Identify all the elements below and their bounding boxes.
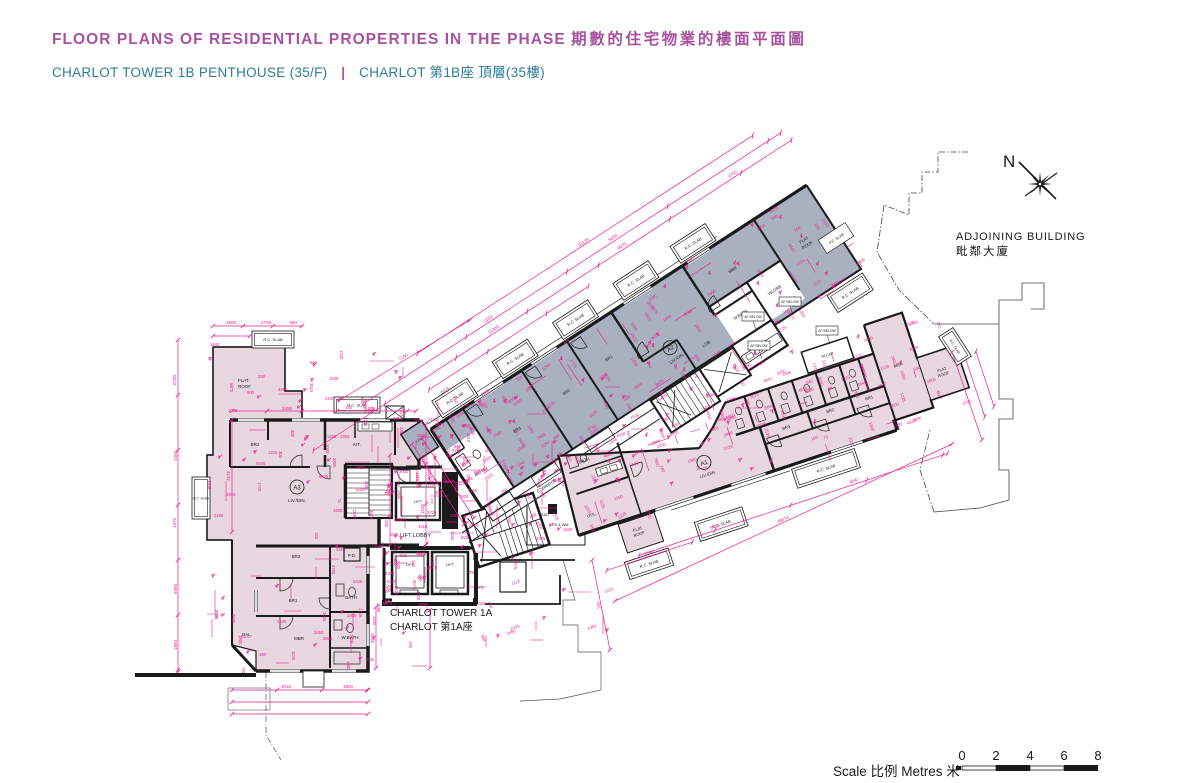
svg-text:1000: 1000: [416, 591, 421, 601]
svg-text:1500: 1500: [333, 508, 343, 513]
svg-text:1046: 1046: [537, 478, 542, 488]
svg-text:1800: 1800: [418, 602, 428, 607]
svg-text:1535: 1535: [629, 412, 640, 420]
svg-text:1640: 1640: [210, 342, 220, 347]
svg-text:160: 160: [507, 516, 512, 524]
svg-text:1350: 1350: [587, 623, 598, 631]
svg-text:4918: 4918: [418, 524, 428, 529]
svg-text:2000: 2000: [364, 481, 369, 491]
svg-text:BR2: BR2: [292, 554, 301, 559]
svg-text:250: 250: [258, 374, 266, 379]
svg-text:6: 6: [1060, 748, 1067, 763]
svg-text:1535: 1535: [277, 619, 287, 624]
svg-text:2180: 2180: [214, 610, 219, 620]
svg-text:2: 2: [992, 748, 999, 763]
svg-text:1640: 1640: [460, 535, 470, 540]
svg-text:3575: 3575: [412, 580, 417, 590]
svg-text:BATH: BATH: [345, 595, 357, 600]
svg-text:2725: 2725: [261, 320, 272, 325]
svg-text:R.C. SLAB: R.C. SLAB: [193, 497, 208, 501]
svg-text:5425: 5425: [319, 474, 329, 479]
svg-text:KIT.: KIT.: [353, 442, 361, 447]
svg-text:3615: 3615: [281, 684, 292, 689]
svg-text:1800: 1800: [352, 509, 357, 519]
svg-text:75: 75: [337, 498, 342, 503]
svg-text:1850: 1850: [173, 639, 178, 650]
svg-text:1535: 1535: [329, 376, 339, 381]
svg-text:P.D.: P.D.: [348, 553, 356, 558]
svg-text:1225: 1225: [268, 450, 278, 455]
svg-text:150: 150: [314, 532, 319, 540]
svg-text:1125: 1125: [511, 578, 522, 586]
svg-text:3450: 3450: [393, 416, 403, 421]
svg-text:6750: 6750: [172, 374, 177, 385]
svg-text:250: 250: [390, 532, 398, 537]
svg-text:2100: 2100: [325, 396, 335, 401]
svg-text:640: 640: [360, 397, 365, 405]
svg-text:1225: 1225: [339, 350, 344, 360]
svg-text:3450: 3450: [314, 630, 324, 635]
svg-text:3575: 3575: [536, 536, 546, 541]
svg-text:5870: 5870: [469, 523, 479, 528]
svg-text:1350: 1350: [415, 472, 420, 482]
svg-text:毗鄰大廈: 毗鄰大廈: [956, 244, 1010, 258]
svg-text:1535: 1535: [551, 511, 561, 522]
svg-text:4647: 4647: [763, 376, 774, 384]
svg-text:1000: 1000: [797, 308, 807, 319]
svg-text:3450: 3450: [278, 387, 288, 392]
svg-text:1125: 1125: [427, 483, 437, 488]
svg-text:3675: 3675: [369, 510, 374, 520]
svg-text:2350: 2350: [173, 450, 178, 461]
svg-text:BR1: BR1: [289, 598, 298, 603]
svg-text:1500: 1500: [226, 320, 237, 325]
svg-text:1046: 1046: [322, 612, 327, 622]
svg-text:960: 960: [289, 320, 297, 325]
svg-text:7600: 7600: [459, 494, 469, 499]
svg-text:ROOF: ROOF: [238, 384, 251, 389]
svg-text:3450: 3450: [356, 465, 366, 470]
svg-text:9075: 9075: [616, 241, 628, 251]
svg-text:3515: 3515: [466, 433, 471, 443]
svg-text:3790: 3790: [331, 565, 336, 575]
svg-text:2000: 2000: [399, 469, 409, 474]
svg-text:1640: 1640: [207, 480, 212, 490]
svg-text:5425: 5425: [462, 457, 467, 467]
svg-text:2180: 2180: [336, 547, 346, 552]
svg-text:160: 160: [345, 405, 353, 410]
svg-text:Scale 比例 Metres 米: Scale 比例 Metres 米: [833, 764, 960, 779]
svg-text:1150: 1150: [450, 531, 455, 541]
svg-text:5425: 5425: [353, 579, 363, 584]
svg-text:LIFT: LIFT: [414, 499, 423, 504]
svg-text:3535: 3535: [370, 632, 375, 643]
svg-text:N: N: [1003, 152, 1015, 171]
svg-text:1800: 1800: [238, 635, 243, 645]
svg-text:FLAT: FLAT: [238, 378, 249, 383]
svg-text:8: 8: [1094, 748, 1101, 763]
svg-text:300: 300: [278, 451, 283, 459]
svg-text:1000: 1000: [325, 444, 330, 454]
svg-text:AF BELOW: AF BELOW: [744, 315, 762, 319]
svg-text:5870: 5870: [229, 383, 234, 393]
svg-text:75: 75: [469, 570, 474, 575]
svg-text:1046: 1046: [291, 651, 296, 661]
svg-text:CHARLOT TOWER 1B PENTHOUSE (3: CHARLOT TOWER 1B PENTHOUSE (35/F) | CHAR…: [52, 64, 545, 80]
svg-text:LIFT: LIFT: [446, 562, 455, 567]
svg-text:1000: 1000: [347, 613, 357, 618]
svg-text:R.C. SLAB: R.C. SLAB: [263, 337, 283, 342]
svg-text:900: 900: [247, 390, 255, 395]
svg-text:1046: 1046: [373, 544, 383, 549]
svg-text:1500: 1500: [394, 517, 404, 522]
svg-text:900: 900: [539, 490, 547, 499]
svg-text:250: 250: [936, 321, 943, 330]
svg-text:5425: 5425: [387, 579, 397, 584]
svg-text:A3: A3: [293, 486, 301, 492]
svg-text:1500: 1500: [346, 661, 351, 671]
svg-text:AF BELOW: AF BELOW: [750, 344, 768, 348]
svg-text:2000: 2000: [658, 428, 666, 439]
svg-text:4: 4: [1026, 748, 1033, 763]
svg-text:5600: 5600: [256, 461, 266, 466]
svg-text:1745: 1745: [363, 417, 368, 427]
svg-text:1150: 1150: [482, 314, 493, 324]
svg-text:AF BELOW: AF BELOW: [818, 329, 836, 333]
svg-text:2100: 2100: [421, 454, 426, 465]
svg-text:2180: 2180: [214, 513, 224, 518]
svg-text:0: 0: [958, 748, 965, 763]
svg-text:4918: 4918: [705, 410, 713, 421]
svg-text:2800: 2800: [397, 490, 402, 500]
svg-text:5600: 5600: [607, 233, 619, 243]
svg-text:250: 250: [387, 585, 392, 593]
svg-text:640: 640: [367, 657, 375, 662]
svg-text:7100: 7100: [398, 352, 410, 362]
svg-text:250: 250: [384, 520, 389, 528]
svg-text:BR2: BR2: [251, 442, 260, 447]
svg-text:MBR: MBR: [294, 636, 305, 641]
svg-text:5870: 5870: [383, 601, 393, 606]
svg-text:2800: 2800: [332, 458, 337, 468]
svg-text:2050: 2050: [430, 557, 435, 567]
svg-text:150: 150: [408, 641, 413, 649]
svg-text:1046: 1046: [417, 552, 427, 557]
svg-text:160: 160: [259, 652, 267, 657]
svg-text:7600: 7600: [349, 634, 354, 644]
svg-text:1225: 1225: [604, 586, 615, 594]
svg-text:160: 160: [411, 560, 416, 568]
svg-text:38070: 38070: [776, 515, 790, 525]
svg-text:FLOOR PLANS OF RESIDENTIAL PRO: FLOOR PLANS OF RESIDENTIAL PROPERTIES IN…: [52, 29, 806, 48]
svg-text:150: 150: [418, 574, 423, 582]
svg-text:4918: 4918: [461, 423, 471, 428]
svg-text:ADJOINING BUILDING: ADJOINING BUILDING: [956, 231, 1085, 243]
svg-text:LIV./DIN.: LIV./DIN.: [288, 498, 306, 503]
svg-text:2330: 2330: [385, 571, 395, 576]
svg-text:5425: 5425: [394, 586, 399, 596]
svg-text:3790: 3790: [452, 448, 462, 453]
svg-text:2800: 2800: [399, 427, 404, 437]
svg-text:1800: 1800: [343, 684, 354, 689]
svg-text:3575: 3575: [513, 560, 518, 570]
svg-text:1046: 1046: [228, 408, 238, 413]
svg-text:CHARLOT 第1A座: CHARLOT 第1A座: [390, 620, 473, 633]
svg-text:640: 640: [310, 360, 318, 365]
svg-text:EAD: EAD: [541, 513, 549, 517]
svg-text:300: 300: [400, 553, 408, 558]
svg-text:4735: 4735: [727, 169, 739, 179]
svg-text:2725: 2725: [427, 510, 437, 515]
svg-text:1745: 1745: [358, 608, 363, 618]
svg-text:CHARLOT TOWER 1A: CHARLOT TOWER 1A: [390, 608, 493, 619]
svg-text:1375: 1375: [172, 517, 177, 528]
svg-text:300: 300: [290, 430, 295, 438]
svg-text:1745: 1745: [257, 482, 262, 492]
svg-text:5600: 5600: [231, 614, 236, 624]
svg-text:1640: 1640: [563, 527, 573, 532]
svg-text:1535: 1535: [420, 503, 425, 514]
svg-text:3450: 3450: [282, 406, 293, 411]
svg-text:7150: 7150: [468, 488, 478, 493]
svg-text:4647: 4647: [849, 477, 861, 485]
svg-text:2725: 2725: [776, 324, 787, 334]
svg-text:3080: 3080: [376, 603, 381, 613]
svg-text:1800: 1800: [414, 418, 424, 423]
svg-text:3515: 3515: [309, 383, 314, 393]
svg-text:900: 900: [474, 470, 482, 475]
svg-text:7575: 7575: [226, 470, 231, 481]
svg-text:2725: 2725: [384, 491, 394, 496]
svg-text:1350: 1350: [340, 434, 350, 439]
svg-text:5900: 5900: [173, 583, 178, 594]
svg-text:3790: 3790: [962, 398, 973, 406]
svg-text:4918: 4918: [226, 492, 236, 497]
svg-text:2800: 2800: [323, 636, 333, 641]
svg-text:LIFT LOBBY: LIFT LOBBY: [400, 533, 431, 539]
svg-text:160: 160: [435, 490, 443, 495]
svg-text:1225: 1225: [327, 434, 337, 439]
svg-text:AF BELOW: AF BELOW: [781, 300, 799, 304]
